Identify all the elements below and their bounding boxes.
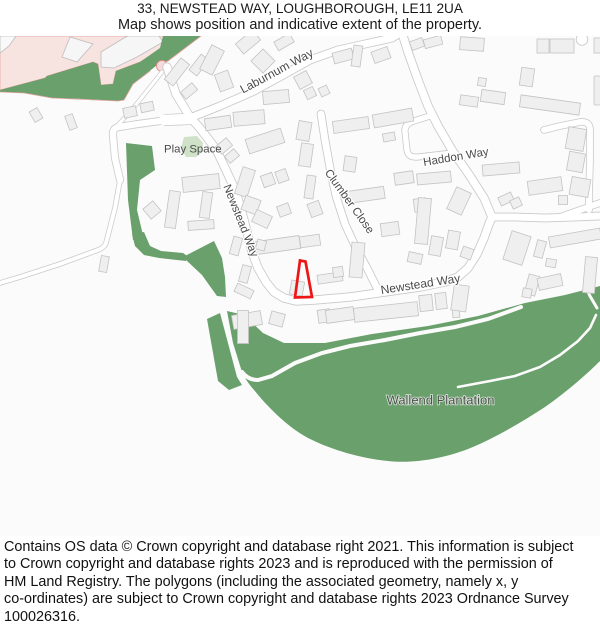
- svg-text:Wallend Plantation: Wallend Plantation: [387, 393, 495, 408]
- svg-text:Play Space: Play Space: [164, 144, 222, 156]
